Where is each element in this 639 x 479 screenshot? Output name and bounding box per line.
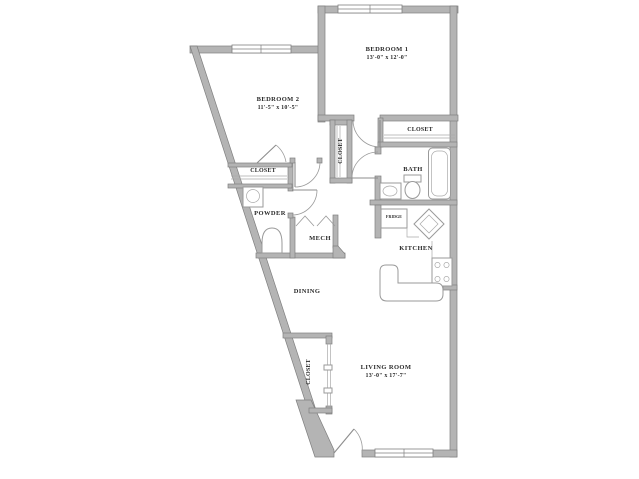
- wall-closet-entry-top: [283, 333, 332, 338]
- wall-kitchen-left: [375, 205, 381, 238]
- wall-closet-hall-right: [347, 120, 352, 183]
- wall-mech-left: [290, 217, 295, 258]
- wall-powder-mech-bottom: [256, 253, 345, 258]
- closet-hall-label: CLOSET: [338, 138, 344, 164]
- closet-entry-label: CLOSET: [306, 359, 312, 385]
- dining-label: DINING: [294, 289, 321, 296]
- window-bedroom2: [232, 45, 291, 53]
- bedroom1-door: [353, 120, 380, 147]
- bathtub: [429, 148, 451, 199]
- mech-bifold-doors: [296, 216, 335, 226]
- bedroom1-dims: 13'-0" x 12'-0": [367, 55, 408, 61]
- wall-closet-entry-bottom: [309, 408, 332, 413]
- wall-closet-bed2-top: [228, 163, 292, 167]
- wall-mech-chamfer: [333, 246, 345, 258]
- closet-bedroom2-label: CLOSET: [250, 168, 276, 174]
- wall-closet-hall-bottom: [330, 178, 352, 183]
- kitchen-label: KITCHEN: [399, 246, 433, 253]
- bath-door: [352, 152, 378, 178]
- powder-door: [292, 190, 317, 215]
- wall-closet-entry-post-top: [326, 336, 332, 344]
- living-room-dims: 13'-0" x 17'-7": [366, 373, 407, 379]
- wall-closet-hall-left: [330, 120, 335, 183]
- bath-fixtures: [380, 148, 451, 199]
- wall-mech-right: [333, 215, 338, 248]
- bedroom2-door: [295, 162, 320, 187]
- window-living: [375, 449, 433, 457]
- bedroom2-label: BEDROOM 2: [257, 97, 300, 104]
- wall-bed2-door-jamb-left: [290, 158, 295, 163]
- wall-powder-right-post: [288, 213, 293, 218]
- shelf-closet-tr: [384, 135, 455, 138]
- bath-toilet: [404, 175, 421, 199]
- living-room-label: LIVING ROOM: [361, 365, 412, 372]
- wall-bedroom1-bottom-right: [380, 115, 458, 121]
- bath-label: BATH: [403, 167, 423, 174]
- mech-label: MECH: [309, 236, 331, 243]
- kitchen-fixtures: [380, 209, 452, 301]
- bedroom1-label: BEDROOM 1: [366, 47, 409, 54]
- entry-door: [334, 429, 362, 453]
- range: [432, 258, 452, 286]
- wall-bath-left-post: [375, 147, 381, 154]
- bath-sink: [380, 183, 401, 199]
- wall-bath-bottom: [370, 200, 457, 205]
- floor-plan: BEDROOM 1 13'-0" x 12'-0" BEDROOM 2 11'-…: [0, 0, 639, 479]
- closet-top-right-label: CLOSET: [407, 127, 433, 133]
- closet-entry-bifold: [324, 344, 332, 406]
- bedroom2-closet-door: [257, 145, 286, 163]
- powder-toilet: [262, 228, 282, 253]
- window-bedroom1: [338, 5, 402, 13]
- powder-sink: [243, 187, 263, 207]
- corner-sink: [414, 209, 444, 239]
- powder-label: POWDER: [254, 211, 286, 218]
- wall-right: [450, 6, 457, 457]
- wall-bed2-door-jamb-right: [317, 158, 322, 163]
- wall-bedroom-divider: [318, 6, 325, 122]
- bedroom2-dims: 11'-5" x 10'-5": [258, 105, 299, 111]
- fridge-label: FRIDGE: [386, 215, 402, 219]
- wall-closet-tr-bottom: [378, 142, 457, 147]
